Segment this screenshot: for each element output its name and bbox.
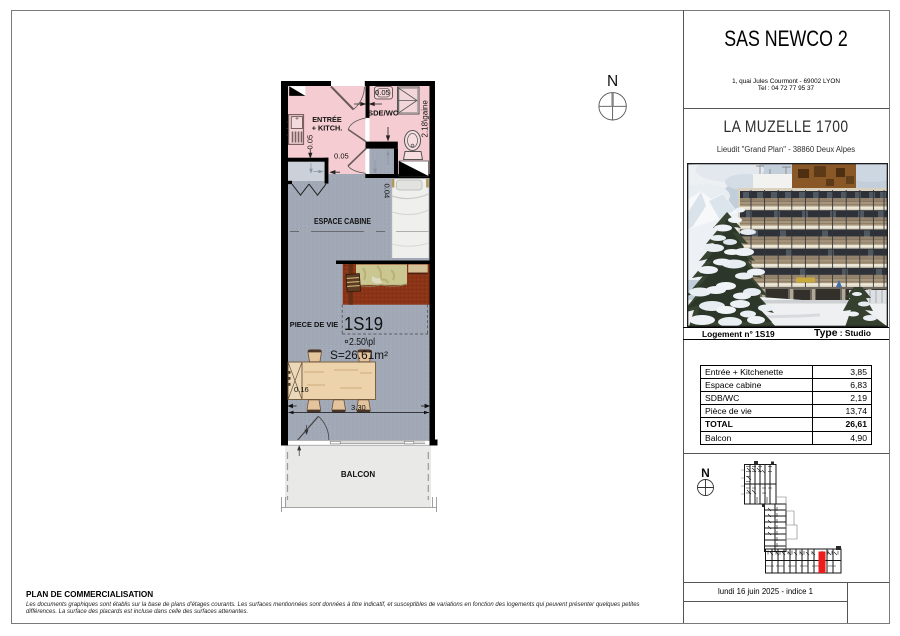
svg-text:N: N: [607, 73, 618, 90]
svg-text:N: N: [701, 466, 710, 480]
svg-text:2.50\pl: 2.50\pl: [349, 336, 375, 348]
svg-text:1S19: 1S19: [344, 313, 383, 334]
svg-text:0.16: 0.16: [294, 385, 309, 394]
svg-text:ESPACE CABINE: ESPACE CABINE: [314, 217, 371, 226]
svg-text:3.30: 3.30: [351, 403, 366, 412]
svg-text:0.05: 0.05: [334, 152, 349, 161]
svg-text:PIECE DE VIE: PIECE DE VIE: [290, 320, 339, 329]
svg-text:S=26.61m²: S=26.61m²: [330, 350, 388, 362]
svg-text:SDE/WC: SDE/WC: [368, 109, 399, 118]
svg-text:+ KITCH.: + KITCH.: [312, 124, 343, 133]
svg-text:2.18\gaine: 2.18\gaine: [421, 100, 430, 138]
svg-text:0.05: 0.05: [375, 88, 390, 97]
svg-text:0.05: 0.05: [306, 135, 315, 150]
svg-text:BALCON: BALCON: [341, 470, 375, 479]
svg-text:0.04: 0.04: [383, 184, 392, 199]
